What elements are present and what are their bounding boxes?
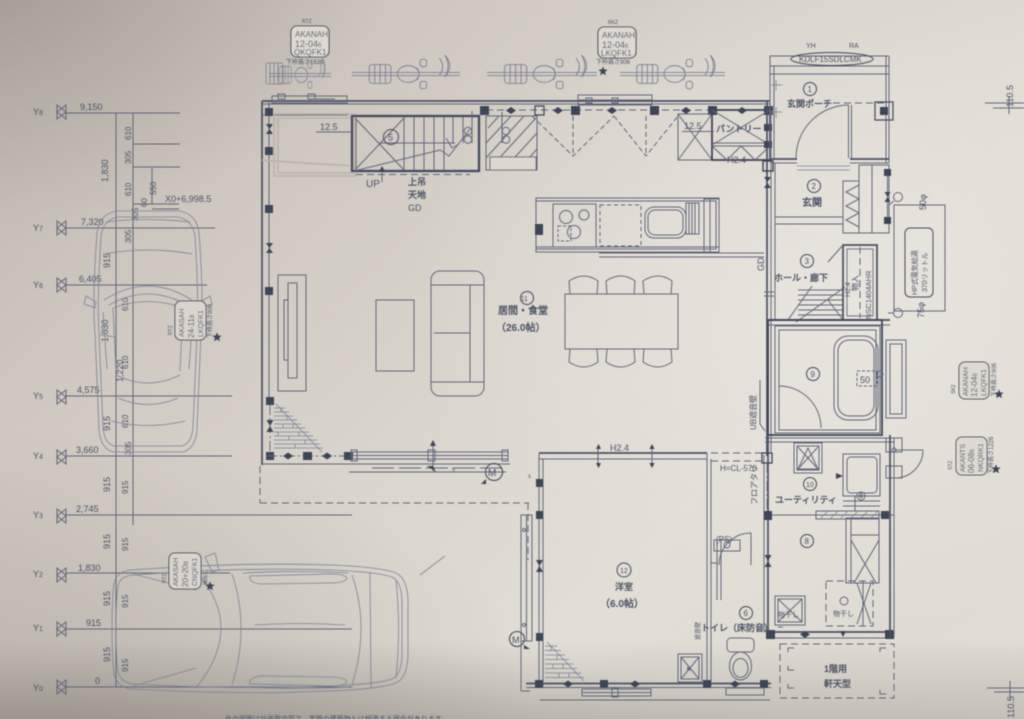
svg-text:下枠高さ906: 下枠高さ906 [206, 303, 214, 338]
svg-text:50φ: 50φ [918, 194, 928, 210]
svg-text:AKANAH: AKANAH [295, 30, 328, 39]
svg-text:2,745: 2,745 [76, 504, 99, 514]
svg-text:玄関: 玄関 [802, 196, 822, 209]
svg-text:（26.0帖）: （26.0帖） [496, 321, 545, 334]
svg-text:M: M [488, 468, 496, 479]
svg-text:6,405: 6,405 [79, 274, 102, 284]
svg-text:915: 915 [86, 618, 101, 628]
svg-text:M: M [512, 635, 520, 645]
svg-text:6: 6 [744, 609, 749, 618]
svg-text:YH: YH [806, 43, 816, 50]
svg-text:0: 0 [95, 676, 100, 686]
svg-text:AKASAH: AKASAH [179, 309, 186, 337]
svg-text:305: 305 [124, 150, 133, 164]
svg-text:915: 915 [102, 647, 112, 662]
svg-text:RTZ: RTZ [162, 573, 168, 583]
svg-text:×: × [687, 667, 691, 673]
svg-text:横出し: 横出し [202, 570, 209, 585]
svg-text:（6.0帖）: （6.0帖） [600, 597, 644, 610]
svg-text:軒天型: 軒天型 [824, 678, 851, 689]
svg-text:610: 610 [121, 355, 130, 369]
svg-text:AKANAH: AKANAH [602, 31, 635, 40]
svg-text:5: 5 [388, 133, 393, 143]
svg-text:物干し: 物干し [778, 610, 799, 619]
svg-text:ユーティリティ: ユーティリティ [775, 495, 837, 505]
svg-text:12: 12 [620, 568, 628, 575]
svg-text:上吊: 上吊 [408, 176, 426, 187]
svg-text:STZ: STZ [948, 461, 954, 470]
svg-text:UB遮音壁: UB遮音壁 [748, 395, 758, 430]
svg-text:H2.4: H2.4 [610, 443, 629, 453]
svg-text:洋室: 洋室 [615, 581, 633, 592]
svg-text:LKQFK1: LKQFK1 [981, 369, 988, 396]
svg-text:RKZ: RKZ [608, 20, 618, 26]
svg-text:915: 915 [102, 253, 112, 268]
svg-text:GD: GD [756, 257, 766, 271]
svg-text:フロアタリ: フロアタリ [750, 465, 759, 505]
svg-text:110.5: 110.5 [1005, 85, 1015, 107]
svg-text:HP式電気給湯: HP式電気給湯 [910, 250, 919, 295]
svg-text:370リットル: 370リットル [922, 252, 929, 292]
svg-text:NKQRK1: NKQRK1 [978, 443, 985, 472]
svg-text:915: 915 [121, 480, 130, 494]
svg-text:915: 915 [102, 591, 112, 606]
svg-text:60: 60 [140, 198, 149, 207]
svg-text:X0+6,998.5: X0+6,998.5 [165, 194, 211, 204]
svg-text:玄関ポーチ: 玄関ポーチ [787, 98, 832, 109]
svg-text:3: 3 [805, 257, 810, 266]
svg-text:ホール・廊下: ホール・廊下 [774, 272, 828, 283]
svg-text:1階用: 1階用 [824, 663, 847, 674]
svg-text:305: 305 [124, 229, 133, 243]
svg-text:915: 915 [121, 658, 130, 672]
svg-text:CNQFK1: CNQFK1 [192, 558, 199, 587]
svg-text:天地: 天地 [408, 189, 426, 200]
svg-text:610: 610 [121, 414, 130, 428]
svg-text:915: 915 [121, 537, 130, 551]
svg-text:AKANAH: AKANAH [963, 367, 970, 396]
svg-text:8: 8 [805, 537, 810, 546]
svg-text:H2.4: H2.4 [845, 282, 852, 297]
svg-text:物干し: 物干し [833, 609, 854, 618]
svg-text:RA: RA [849, 43, 859, 50]
svg-text:トイレ（床防音）: トイレ（床防音） [701, 622, 773, 633]
svg-text:s: s [452, 467, 455, 473]
svg-text:1,830: 1,830 [78, 563, 101, 573]
svg-text:1,830: 1,830 [100, 159, 110, 182]
svg-text:UP: UP [366, 179, 380, 190]
svg-text:10: 10 [806, 482, 814, 489]
svg-text:下枠高さ906: 下枠高さ906 [596, 58, 631, 66]
svg-text:915: 915 [102, 477, 112, 492]
svg-text:下枠高さ906: 下枠高さ906 [990, 362, 998, 397]
svg-text:2: 2 [812, 182, 817, 191]
svg-text:550: 550 [149, 181, 158, 195]
svg-text:9,150: 9,150 [80, 102, 103, 112]
svg-text:305: 305 [124, 441, 133, 455]
svg-text:KDLF15SDLCMK: KDLF15SDLCMK [799, 55, 862, 64]
svg-text:9: 9 [811, 370, 816, 379]
svg-text:QKQFK1: QKQFK1 [294, 48, 327, 57]
svg-text:12.5: 12.5 [684, 121, 702, 131]
svg-text:610: 610 [124, 182, 133, 196]
svg-text:パントリー: パントリー [716, 123, 761, 134]
svg-text:110.5: 110.5 [1006, 696, 1016, 718]
svg-text:s: s [528, 474, 531, 480]
svg-text:915: 915 [121, 594, 130, 608]
svg-text:1: 1 [808, 85, 813, 94]
svg-text:下枠高さ1626: 下枠高さ1626 [286, 58, 324, 66]
svg-text:H2.4: H2.4 [727, 155, 746, 165]
svg-text:居間・食堂: 居間・食堂 [498, 304, 548, 317]
svg-text:AKASAH: AKASAH [173, 558, 180, 586]
svg-text:4,575: 4,575 [77, 385, 100, 395]
svg-text:11: 11 [521, 296, 528, 303]
svg-text:AKANTS: AKANTS [960, 444, 967, 472]
svg-text:75φ: 75φ [916, 302, 926, 318]
svg-text:915: 915 [102, 534, 112, 549]
svg-text:SK2: SK2 [951, 384, 957, 394]
svg-text:GD: GD [408, 203, 422, 213]
svg-text:LKQFK1: LKQFK1 [198, 310, 205, 337]
svg-text:RTZ: RTZ [168, 325, 174, 335]
svg-text:NSC1404AHR: NSC1404AHR [864, 270, 873, 319]
svg-text:610: 610 [124, 126, 133, 140]
svg-text:50: 50 [860, 375, 870, 385]
svg-text:3,660: 3,660 [76, 445, 99, 455]
svg-text:LKQFK1: LKQFK1 [601, 49, 632, 58]
svg-text:12.5: 12.5 [320, 122, 338, 132]
svg-text:305: 305 [131, 207, 140, 221]
svg-text:RTZ: RTZ [302, 19, 312, 25]
